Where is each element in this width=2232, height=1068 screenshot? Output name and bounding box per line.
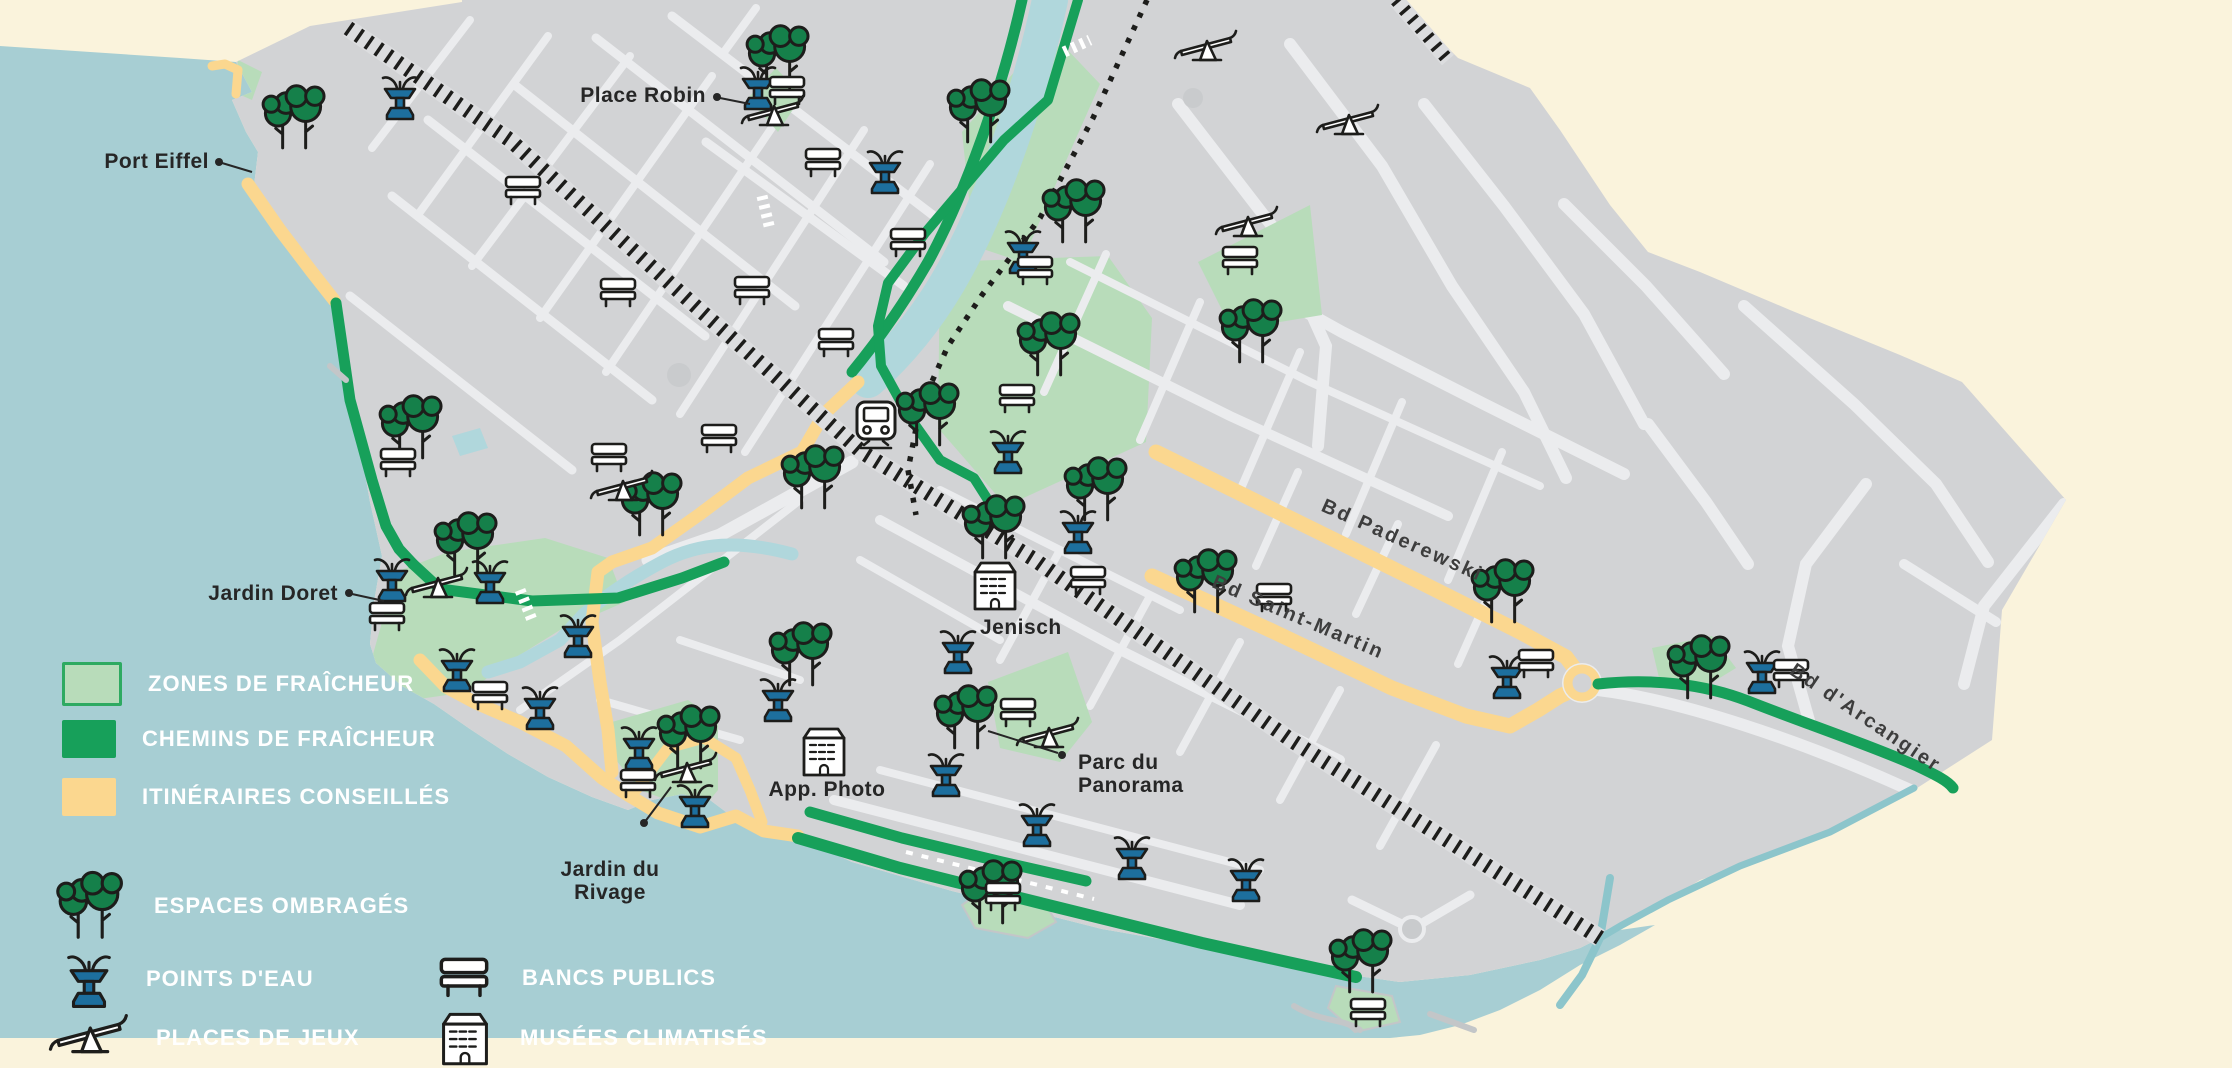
roundabout-ring <box>1568 669 1596 697</box>
roundabout <box>1400 917 1424 941</box>
label-dot <box>345 589 353 597</box>
poi-label: Jenisch <box>980 616 1062 639</box>
plaza-circle <box>667 363 691 387</box>
label-dot <box>640 819 648 827</box>
region-label: Jardin Doret <box>208 582 338 605</box>
cool-map: Port EiffelPlace RobinJardin DoretJardin… <box>0 0 2232 1038</box>
poi-label: App. Photo <box>769 778 886 801</box>
region-label: Port Eiffel <box>104 150 209 173</box>
region-label: Jardin duRivage <box>560 858 659 904</box>
label-dot <box>1058 751 1066 759</box>
museum-icon <box>804 729 844 775</box>
label-dot <box>215 158 223 166</box>
label-dot <box>713 93 721 101</box>
region-label: Place Robin <box>580 84 706 107</box>
plaza-circle <box>1183 88 1203 108</box>
museum-icon <box>975 563 1015 609</box>
